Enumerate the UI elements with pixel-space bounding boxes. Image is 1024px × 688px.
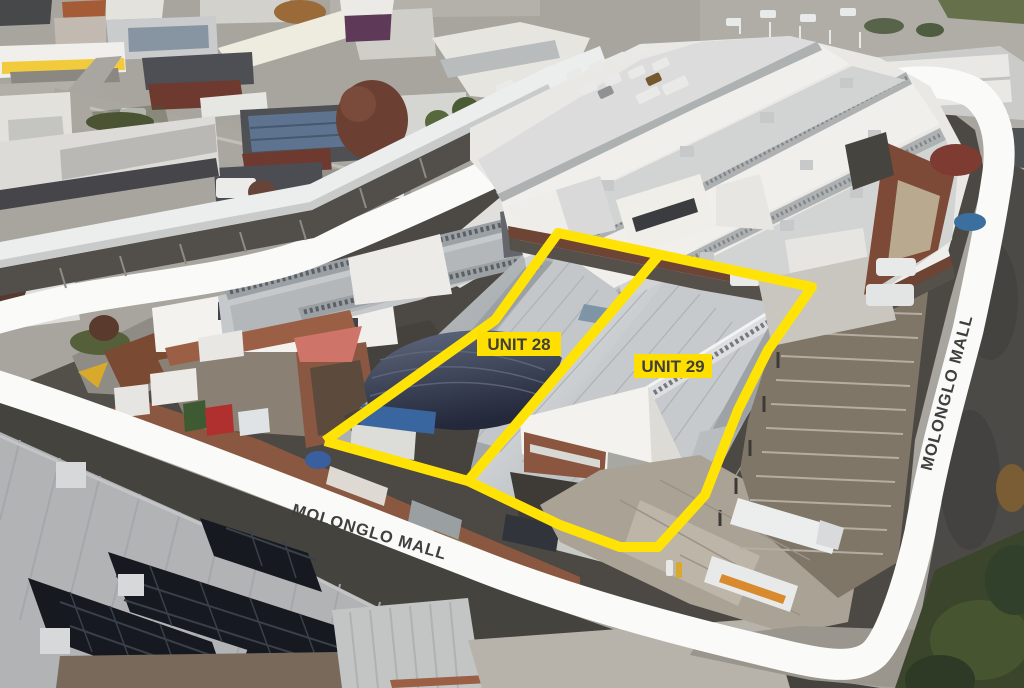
svg-text:UNIT 28: UNIT 28 — [487, 335, 550, 354]
svg-text:UNIT 29: UNIT 29 — [641, 357, 704, 376]
